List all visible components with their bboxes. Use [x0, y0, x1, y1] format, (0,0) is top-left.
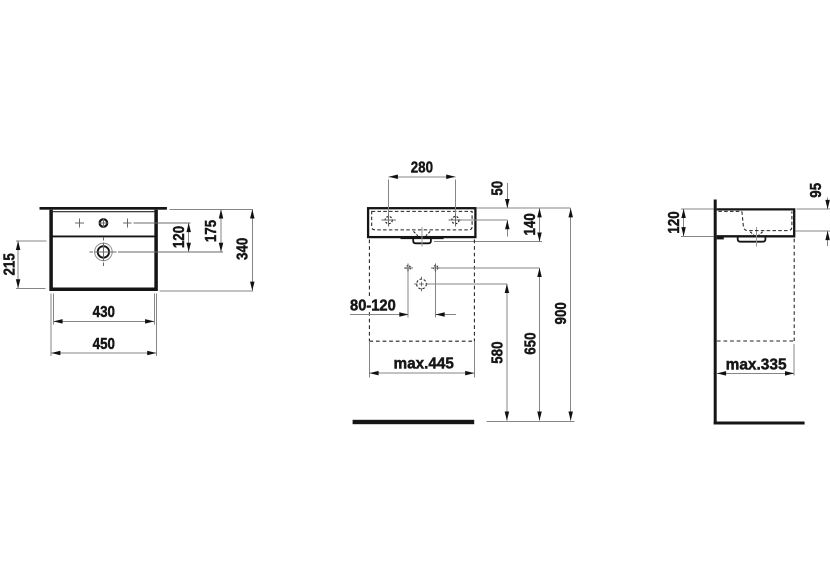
- svg-text:280: 280: [411, 160, 434, 177]
- svg-text:max.445: max.445: [394, 356, 455, 373]
- svg-text:340: 340: [235, 238, 252, 261]
- svg-text:430: 430: [93, 304, 116, 321]
- svg-text:120: 120: [171, 226, 188, 249]
- svg-text:120: 120: [666, 211, 683, 234]
- svg-text:175: 175: [203, 220, 220, 243]
- svg-text:215: 215: [2, 253, 19, 276]
- svg-text:max.335: max.335: [726, 356, 787, 373]
- svg-text:650: 650: [522, 332, 539, 355]
- svg-text:450: 450: [93, 336, 116, 353]
- svg-text:900: 900: [553, 302, 570, 325]
- svg-text:580: 580: [489, 341, 506, 364]
- svg-text:95: 95: [808, 183, 825, 198]
- svg-text:50: 50: [489, 181, 506, 196]
- svg-text:80-120: 80-120: [350, 297, 396, 314]
- svg-text:140: 140: [522, 213, 539, 236]
